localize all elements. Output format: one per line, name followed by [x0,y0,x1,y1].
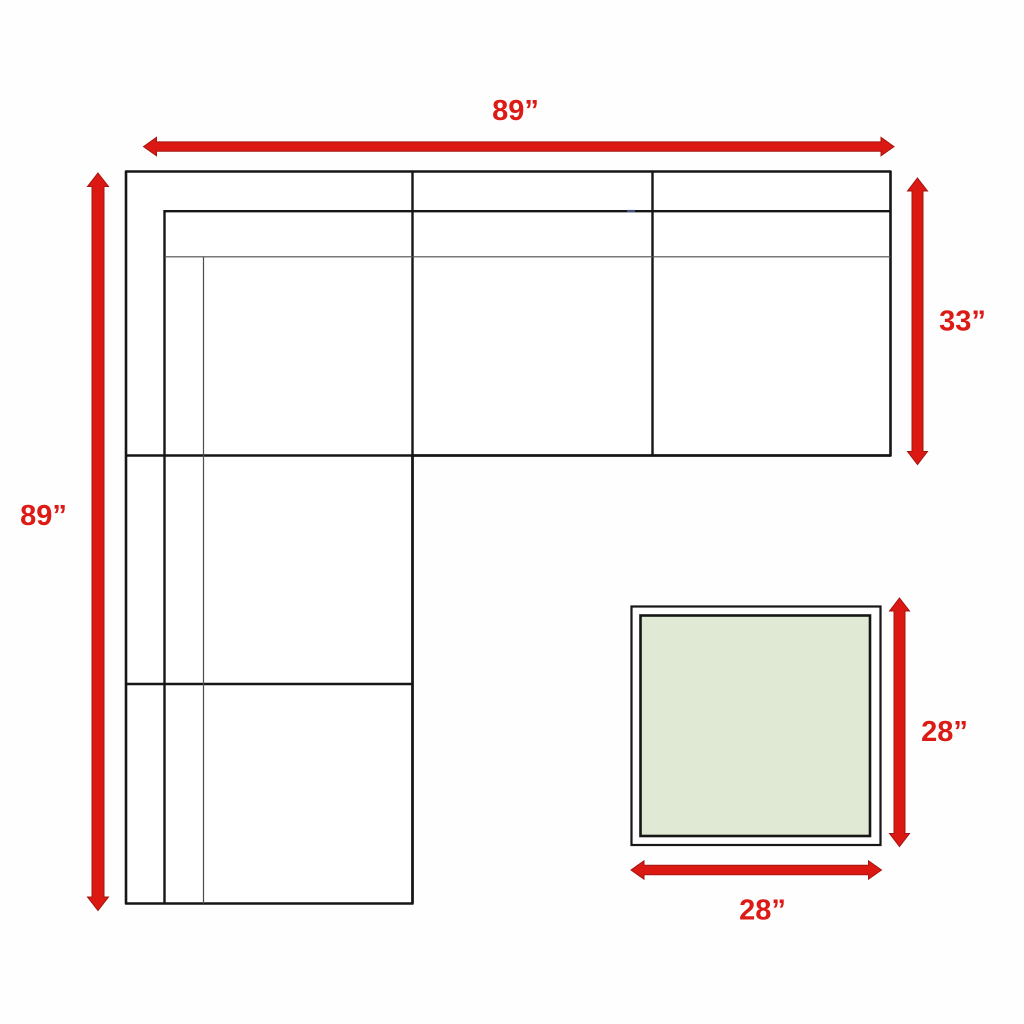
svg-text:33”: 33” [939,306,986,338]
svg-text:89”: 89” [492,95,539,127]
svg-text:28”: 28” [739,895,786,927]
svg-text:89”: 89” [20,500,67,532]
svg-text:28”: 28” [921,716,968,748]
